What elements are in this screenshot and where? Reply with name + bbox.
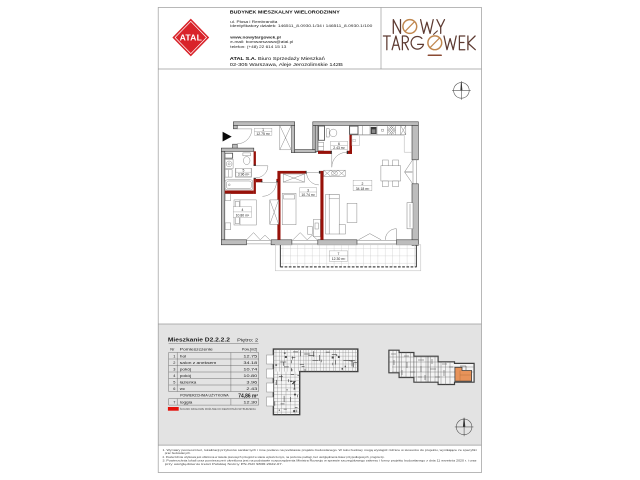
- svg-text:3: 3: [173, 367, 175, 372]
- svg-text:telefon: (+48) 22 614 15 13: telefon: (+48) 22 614 15 13: [230, 45, 286, 49]
- svg-text:ATAL: ATAL: [180, 33, 202, 43]
- svg-text:3: 3: [307, 188, 309, 192]
- svg-text:salon z aneksem: salon z aneksem: [180, 360, 217, 365]
- svg-text:e-mail: bomwarszawa@atal.pl: e-mail: bomwarszawa@atal.pl: [230, 40, 293, 44]
- svg-text:Piętro: 2: Piętro: 2: [237, 338, 259, 343]
- svg-text:łazienka: łazienka: [180, 380, 197, 385]
- svg-text:identyfikatory działek: 146511: identyfikatory działek: 146511_8.0930.1/…: [230, 24, 372, 28]
- svg-text:przy uwzględnieniu treści Pols: przy uwzględnieniu treści Polskiej Normy…: [165, 462, 283, 466]
- svg-text:02-305 Warszawa, Aleje Jerozol: 02-305 Warszawa, Aleje Jerozolimskie 142…: [230, 62, 343, 68]
- svg-text:POWIERZCHNIA UŻYTKOWA: POWIERZCHNIA UŻYTKOWA: [180, 393, 229, 398]
- svg-text:pokój: pokój: [180, 373, 191, 378]
- svg-text:10.74: 10.74: [243, 367, 258, 372]
- svg-text:10.80 m²: 10.80 m²: [236, 213, 250, 217]
- svg-text:BUDYNEK MIESZKALNY WIELORODZIN: BUDYNEK MIESZKALNY WIELORODZINNY: [230, 10, 341, 16]
- svg-text:Mieszkanie D2.2.2.2: Mieszkanie D2.2.2.2: [168, 338, 230, 344]
- svg-text:34.18 m²: 34.18 m²: [356, 187, 370, 191]
- svg-text:12.75 m²: 12.75 m²: [256, 132, 270, 136]
- svg-text:3.96: 3.96: [246, 380, 257, 385]
- svg-text:6: 6: [173, 386, 175, 391]
- svg-text:1. Wymiary pomieszczeń, lokal: 1. Wymiary pomieszczeń, lokalizacji przy…: [163, 448, 477, 452]
- svg-text:wc: wc: [180, 386, 185, 391]
- svg-text:10.80: 10.80: [243, 373, 258, 378]
- svg-text:12.30 m²: 12.30 m²: [332, 257, 346, 261]
- svg-text:12.75: 12.75: [243, 354, 257, 359]
- svg-text:2.43: 2.43: [246, 386, 257, 391]
- svg-text:Pow.[m2]: Pow.[m2]: [242, 347, 257, 352]
- svg-text:12.30: 12.30: [243, 399, 258, 404]
- svg-text:7: 7: [173, 399, 175, 404]
- svg-text:2: 2: [362, 182, 364, 186]
- svg-text:3.96 m²: 3.96 m²: [238, 173, 250, 177]
- svg-text:34.18: 34.18: [243, 360, 257, 365]
- svg-text:ATAL S.A. Biuro Sprzedaży Mies: ATAL S.A. Biuro Sprzedaży Mieszkań: [230, 56, 325, 62]
- svg-text:2: 2: [173, 360, 175, 365]
- svg-text:5: 5: [173, 380, 175, 385]
- svg-text:loggia: loggia: [180, 399, 193, 404]
- svg-text:10.74 m²: 10.74 m²: [301, 193, 315, 197]
- svg-text:4: 4: [241, 208, 243, 212]
- svg-text:ŚCIANKI DZIAŁOWE MOŻLIWE DO DE: ŚCIANKI DZIAŁOWE MOŻLIWE DO DEMONTAŻU/WY…: [180, 408, 256, 411]
- svg-text:7: 7: [338, 252, 340, 256]
- svg-text:Nr: Nr: [170, 347, 175, 352]
- svg-text:Pomieszczenie: Pomieszczenie: [180, 347, 213, 352]
- svg-text:2.43 m²: 2.43 m²: [333, 146, 345, 150]
- svg-text:hol: hol: [180, 354, 187, 359]
- svg-text:www.nowytargowek.pl: www.nowytargowek.pl: [229, 35, 281, 39]
- svg-text:1: 1: [173, 354, 175, 359]
- svg-text:pokój: pokój: [180, 367, 191, 372]
